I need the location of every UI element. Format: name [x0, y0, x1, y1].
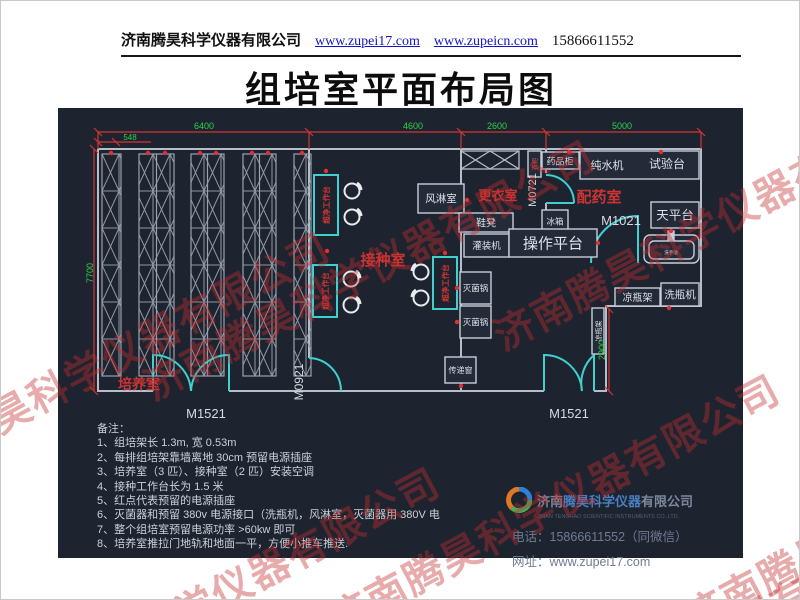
clean-bench-label: 超净工作台 — [320, 272, 330, 311]
dim-4600: 4600 — [403, 121, 423, 131]
note-line: 8、培养室推拉门地轨和地面一平，方便小推车推送. — [97, 537, 427, 551]
bottle-washer-label: 洗瓶机 — [664, 288, 696, 301]
room-culture: 培养室 — [118, 376, 160, 392]
room-changing: 更衣室 — [478, 188, 517, 203]
notes: 备注： 1、组培架长 1.3m, 宽 0.53m 2、每排组培架靠墙离地 30c… — [97, 422, 427, 552]
note-line: 3、培养室（3 匹）、接种室（2 匹）安装空调 — [97, 465, 427, 479]
sterilizer-label-1: 灭菌锅 — [463, 283, 489, 293]
note-line: 6、灭菌器和预留 380v 电源接口（洗瓶机，风淋室，灭菌器用 380V 电 — [97, 508, 427, 522]
balance-label: 天平台 — [656, 208, 694, 223]
company-logo-icon — [506, 487, 532, 513]
brand-web: 网址：www.zupei17.com — [512, 551, 746, 570]
door-label-m1521-right: M1521 — [549, 406, 589, 421]
notes-title: 备注： — [97, 422, 427, 436]
page: 济南腾昊科学仪器有限公司 www.zupei17.com www.zupeicn… — [0, 0, 800, 600]
room-dispensing: 配药室 — [576, 188, 621, 206]
dim-2600: 2600 — [487, 121, 507, 131]
door-label-m0721: M0721 — [527, 173, 539, 207]
pass-window-label: 传递窗 — [449, 365, 473, 375]
brand-block: 济南腾昊科学仪器有限公司 JINAN TENGHAO SCIENTIFIC IN… — [506, 487, 746, 570]
brand-company-en: JINAN TENGHAO SCIENTIFIC INSTRUMENTS CO.… — [537, 514, 746, 520]
brand-company-name: 济南腾昊科学仪器有限公司 — [537, 491, 693, 510]
fridge-label: 冰箱 — [546, 217, 564, 227]
clean-bench-label: 超净工作台 — [440, 264, 450, 303]
filler-label: 灌装机 — [472, 240, 501, 252]
dim-6400: 6400 — [194, 121, 214, 131]
note-line: 5、红点代表预留的电源插座 — [97, 494, 427, 508]
air-shower-label: 风淋室 — [425, 192, 457, 205]
note-line: 1、组培架长 1.3m, 宽 0.53m — [97, 436, 427, 450]
med-cabinet-label: 药品柜 — [546, 156, 573, 167]
note-line: 4、接种工作台长为 1.5 米 — [97, 480, 427, 494]
sink-label: 洗手池 — [664, 249, 678, 256]
note-line: 2、每排组培架靠墙离地 30cm 预留电源插座 — [97, 451, 427, 465]
pure-water-label: 纯水机 — [591, 158, 624, 172]
note-line: 7、整个组培室预留电源功率 >60kw 即可 — [97, 523, 427, 537]
door-label-m1521-left: M1521 — [186, 406, 226, 421]
bottle-rack-vertical-label: 凉瓶架 — [594, 321, 603, 342]
shoe-bench-label: 鞋凳 — [476, 217, 496, 230]
dim-5000: 5000 — [612, 121, 632, 131]
clean-bench-label: 超净工作台 — [321, 186, 331, 225]
sterilizer-label-2: 灭菌锅 — [463, 317, 489, 327]
door-label-m0921: M0921 — [292, 363, 306, 400]
door-label-m1021: M1021 — [601, 213, 641, 228]
test-bench-label: 试验台 — [649, 156, 685, 171]
dim-2900: 2900 — [597, 340, 607, 360]
wardrobe-label: 衣柜 — [530, 157, 539, 171]
brand-phone: 电话：15866611552（同微信） — [512, 526, 746, 545]
dim-548: 548 — [123, 133, 137, 142]
bottle-rack-label: 凉瓶架 — [623, 291, 653, 304]
dim-7700: 7700 — [85, 263, 95, 283]
room-inoculation: 接种室 — [360, 251, 405, 269]
platform-label: 操作平台 — [523, 236, 583, 253]
